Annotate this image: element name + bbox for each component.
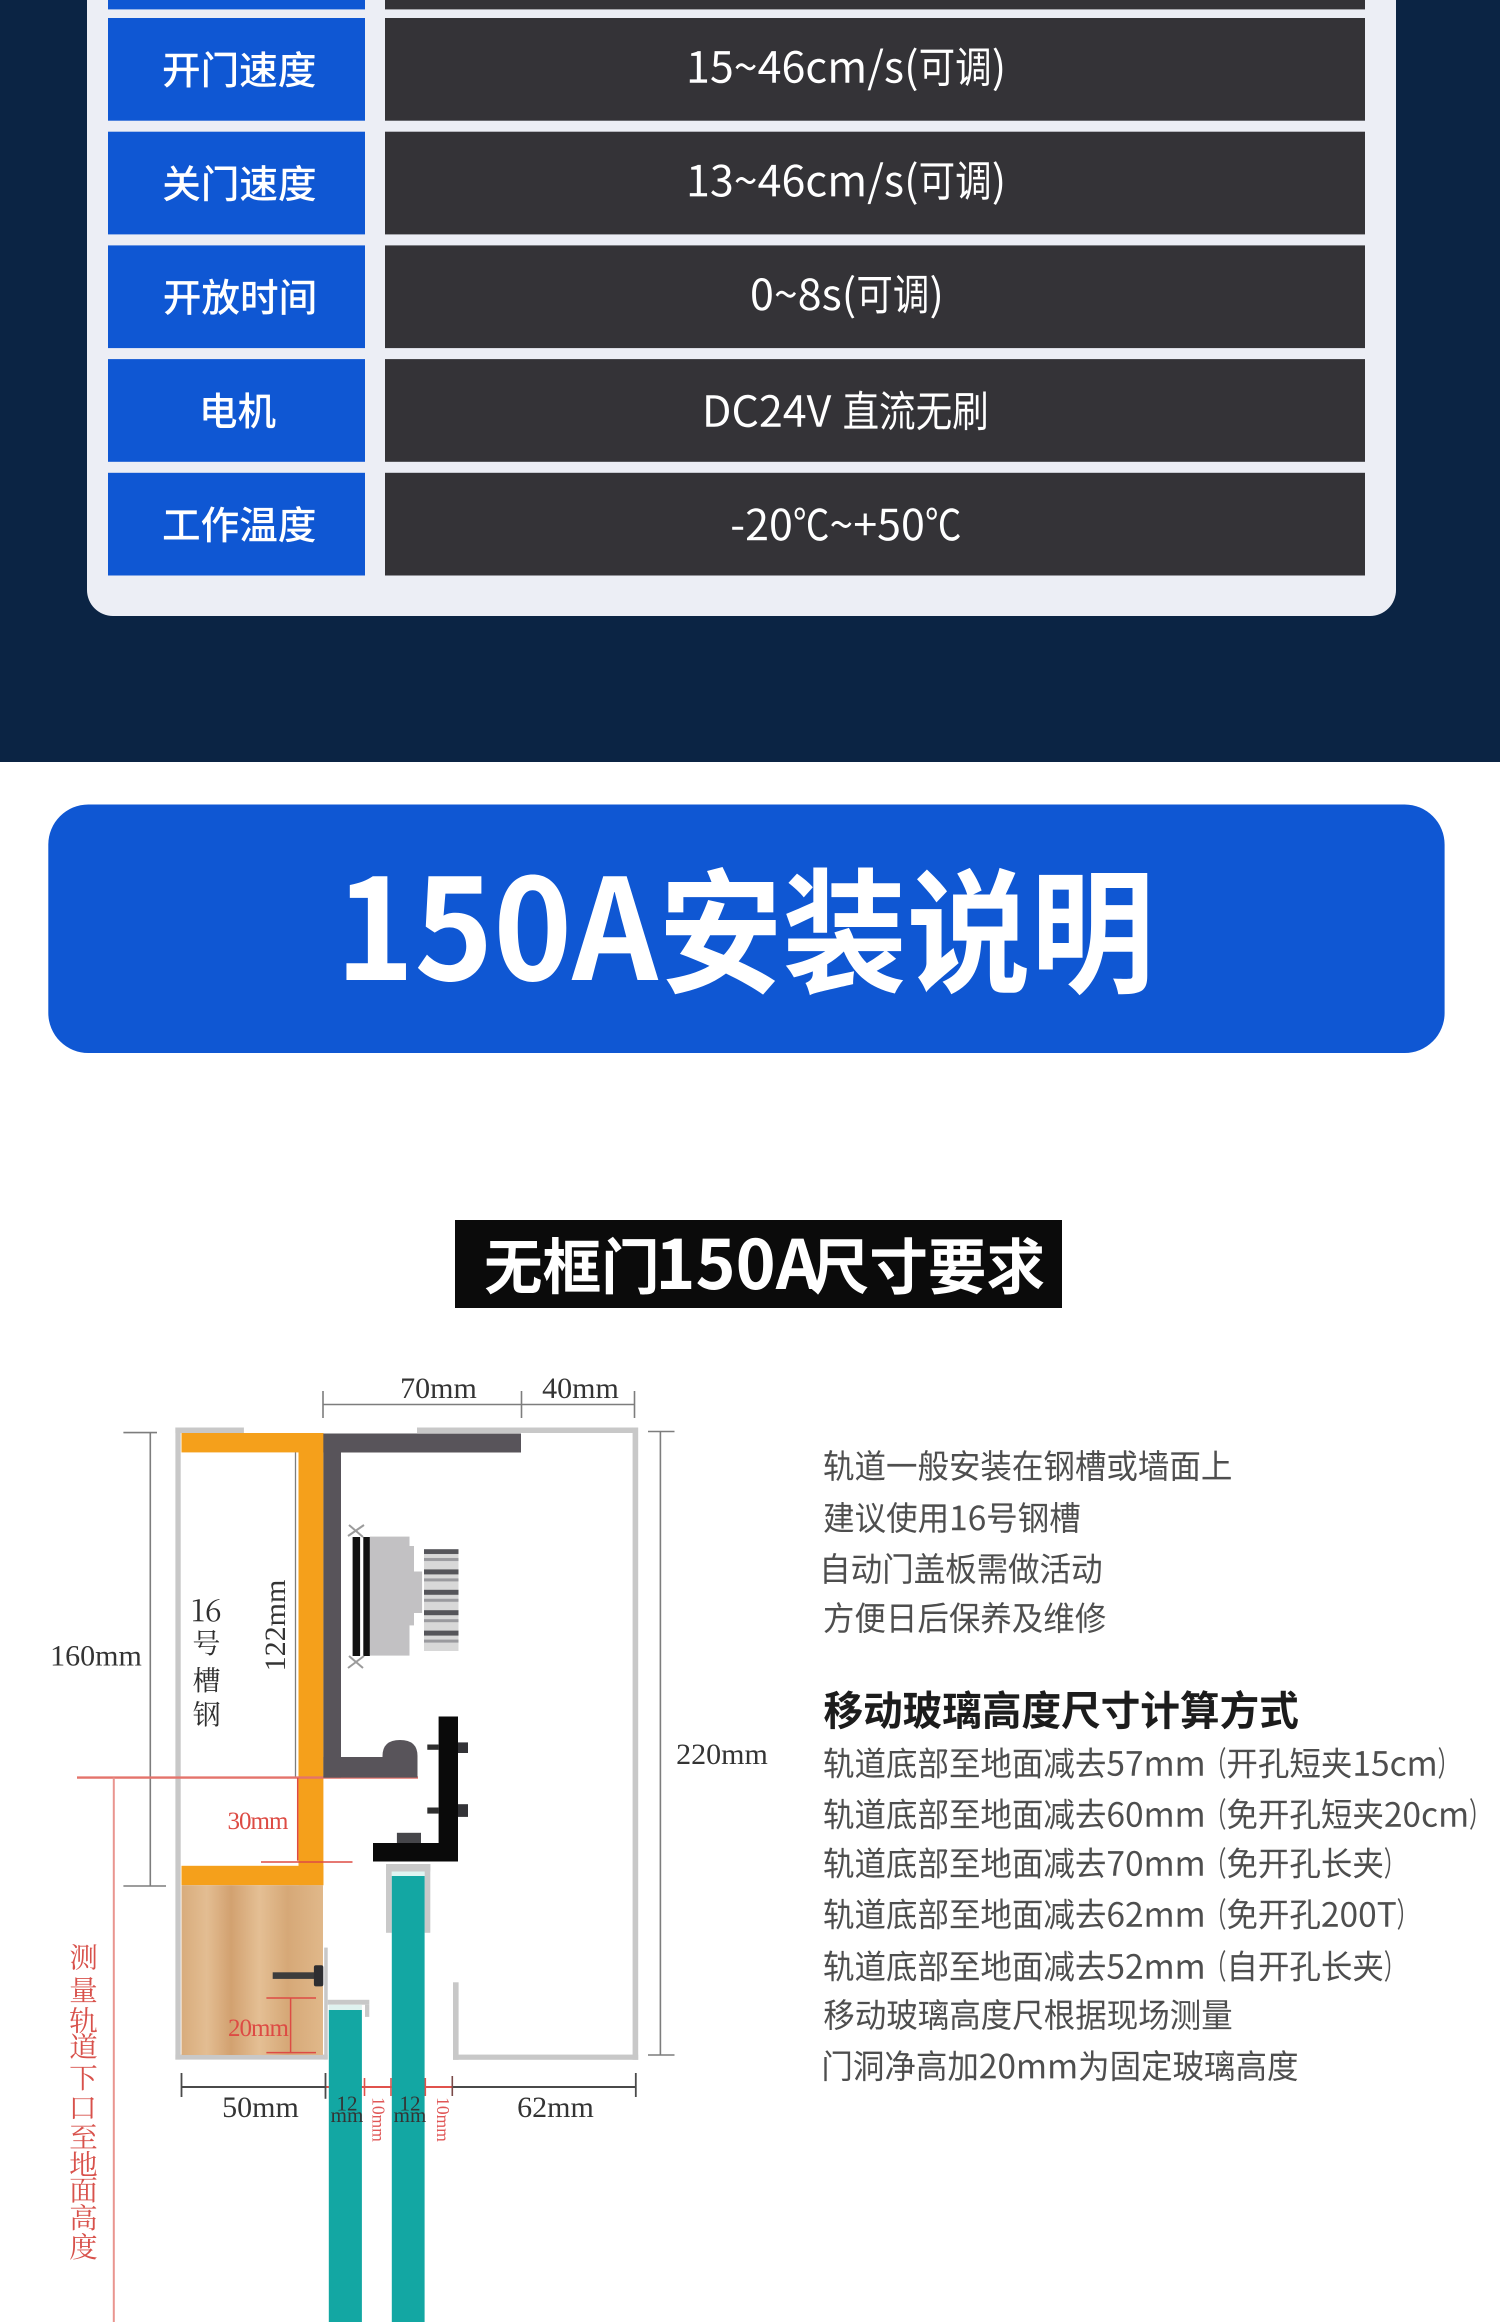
svg-text:30mm: 30mm — [228, 1808, 289, 1835]
svg-text:mm: mm — [394, 2103, 427, 2127]
svg-text:50mm: 50mm — [222, 2091, 299, 2124]
svg-text:70mm: 70mm — [400, 1372, 477, 1405]
svg-text:10mm: 10mm — [369, 2097, 389, 2142]
svg-text:40mm: 40mm — [542, 1372, 619, 1405]
svg-text:20mm: 20mm — [228, 2015, 289, 2042]
svg-text:10mm: 10mm — [433, 2097, 453, 2142]
svg-text:220mm: 220mm — [676, 1738, 768, 1771]
svg-text:mm: mm — [331, 2103, 364, 2127]
svg-text:122mm: 122mm — [259, 1580, 292, 1672]
svg-text:160mm: 160mm — [50, 1640, 142, 1673]
svg-text:62mm: 62mm — [517, 2091, 594, 2124]
